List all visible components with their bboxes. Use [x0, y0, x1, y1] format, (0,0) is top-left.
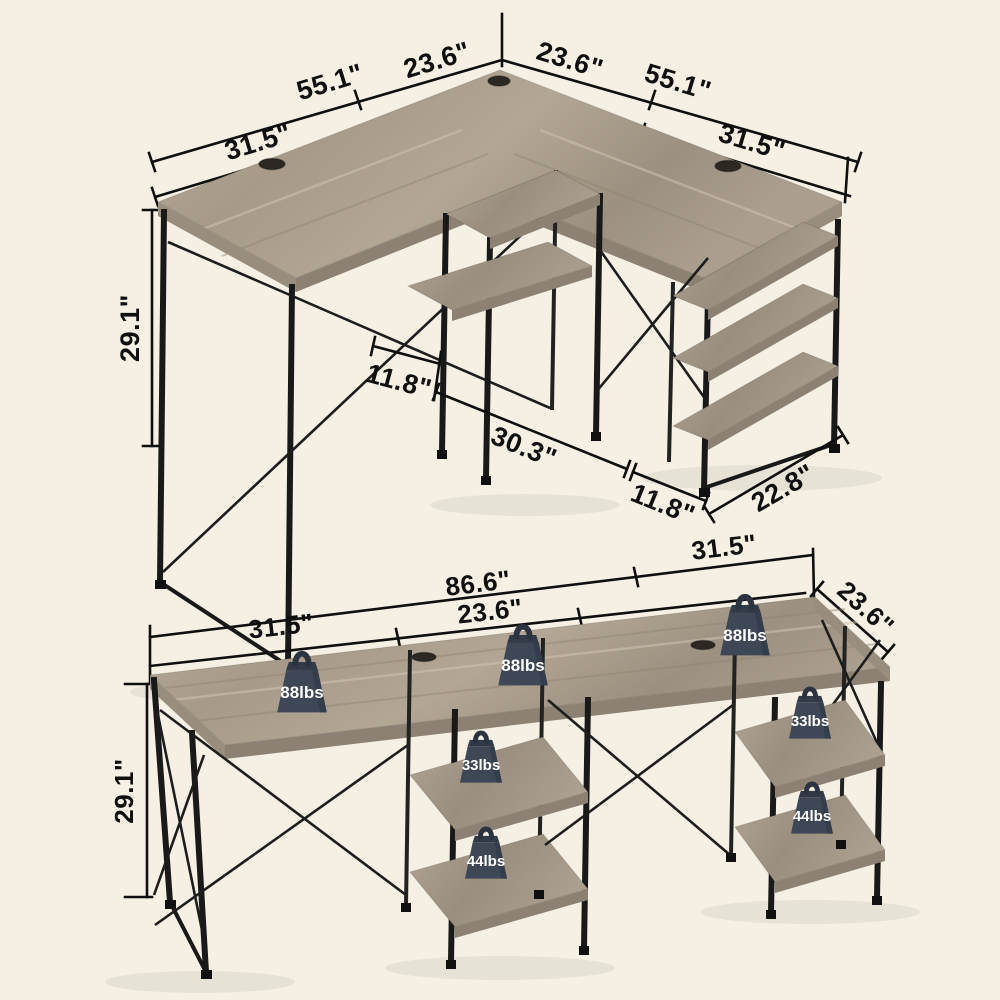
center-tower-shelf-upper	[410, 737, 588, 830]
cable-grommet	[412, 653, 436, 662]
dim-tick	[838, 427, 848, 443]
floor-shadow	[385, 956, 615, 980]
straight-desk-diagram: 86.6" 31.5" 31.5" 23.6" 23.6" 29.1"	[105, 528, 920, 993]
weight-label: 33lbs	[462, 757, 500, 774]
cable-grommet	[715, 161, 741, 172]
dim-tick	[704, 506, 714, 522]
shelf-leg	[596, 196, 600, 434]
leg-foot	[726, 853, 736, 862]
dim-label-center-section: 23.6"	[456, 592, 524, 629]
weight-label: 44lbs	[793, 808, 831, 825]
weight-label: 88lbs	[280, 683, 323, 702]
leg-foot	[481, 476, 491, 485]
leg-foot	[155, 580, 166, 589]
dim-height-bottom: 29.1"	[109, 684, 152, 897]
dim-label-height: 29.1"	[115, 294, 145, 362]
dim-label-left-section: 31.5"	[247, 607, 315, 644]
desk-leg	[160, 212, 164, 582]
floor-shadow	[430, 494, 620, 516]
shelf-leg	[584, 700, 588, 948]
leg-foot	[534, 890, 544, 899]
dim-label-height: 29.1"	[109, 758, 139, 823]
weight-label: 88lbs	[723, 626, 766, 645]
shelf-leg	[669, 284, 673, 460]
diagram-canvas: 55.1" 23.6" 23.6" 55.1" 31.5" 31.5" 29.1	[0, 0, 1000, 1000]
dim-tick	[813, 549, 814, 597]
leg-foot	[437, 450, 447, 459]
weight-center-tower-lower: 44lbs	[465, 829, 507, 879]
weight-label: 33lbs	[791, 713, 829, 730]
dim-label-left-corner-span: 23.6"	[400, 36, 474, 85]
leg-foot	[201, 970, 212, 979]
weight-label: 44lbs	[467, 853, 505, 870]
dim-knee-clearance: 30.3"	[433, 384, 630, 477]
leg-foot	[836, 840, 846, 849]
floor-shadow	[105, 971, 295, 993]
dim-label-center-shelf-depth: 11.8"	[363, 358, 435, 404]
leg-foot	[591, 432, 601, 441]
shelf-leg	[442, 216, 446, 452]
left-leg-frame	[155, 212, 294, 673]
dim-height-left: 29.1"	[115, 210, 161, 446]
floor-shadow	[700, 900, 920, 924]
leg-foot	[766, 910, 776, 919]
dim-tick	[649, 91, 655, 109]
weight-right-tower-upper: 33lbs	[789, 689, 831, 739]
leg-foot	[446, 960, 456, 969]
product-dimension-diagram: 55.1" 23.6" 23.6" 55.1" 31.5" 31.5" 29.1	[0, 0, 1000, 1000]
weight-center-tower-upper: 33lbs	[460, 733, 502, 783]
cable-grommet	[259, 159, 285, 170]
cable-grommet	[488, 76, 510, 86]
shelf-leg	[834, 222, 838, 446]
desk-leg	[154, 680, 170, 902]
cable-grommet	[691, 641, 715, 650]
l-desktop-surface	[158, 70, 842, 278]
dim-label-right-corner-span: 23.6"	[533, 36, 607, 85]
dim-label-left-wing-total: 55.1"	[293, 58, 367, 107]
x-brace-bar	[596, 258, 708, 392]
shelf-leg	[704, 296, 708, 490]
leg-foot	[872, 896, 882, 905]
dim-label-right-section: 31.5"	[690, 528, 759, 566]
leg-foot	[579, 946, 589, 955]
leg-foot	[829, 444, 840, 453]
leg-foot	[165, 900, 176, 909]
weight-label: 88lbs	[501, 656, 544, 675]
shelf-leg	[877, 684, 881, 898]
leg-foot	[401, 903, 411, 912]
